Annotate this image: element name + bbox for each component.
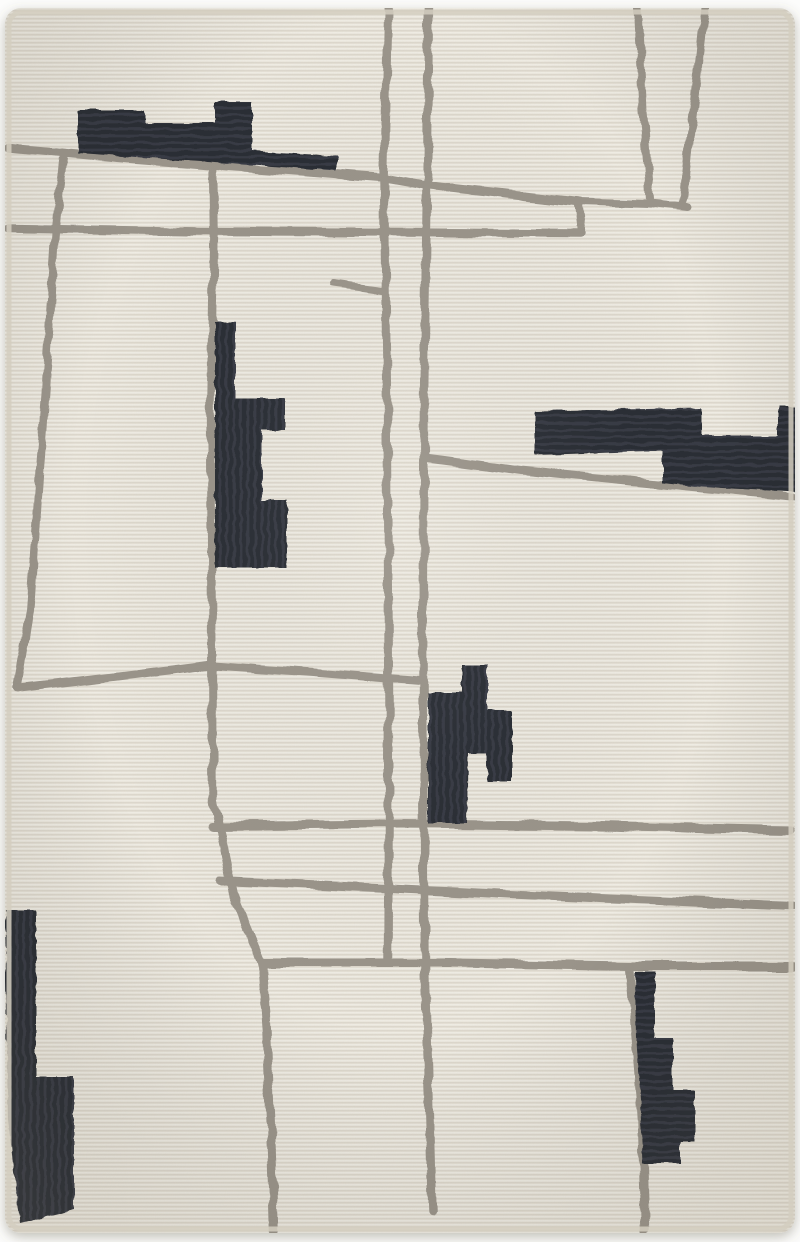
rug-product-photo bbox=[0, 0, 800, 1242]
rug-image bbox=[0, 0, 800, 1242]
rug-vignette bbox=[5, 8, 795, 1233]
